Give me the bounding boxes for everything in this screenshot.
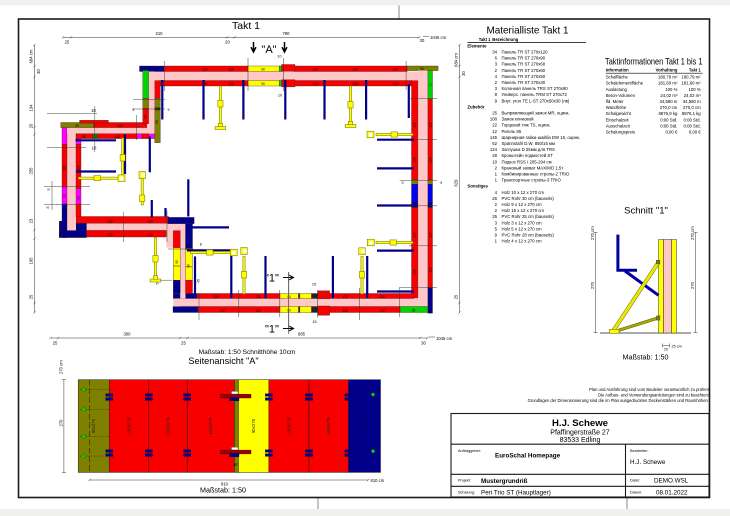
svg-text:120: 120: [429, 267, 433, 273]
svg-text:Information: Information: [606, 67, 629, 72]
svg-text:Taktinformationen Takt 1 bis: Taktinformationen Takt 1 bis 1: [605, 57, 703, 67]
svg-text:PVC Rohr 25 cm (bauseits): PVC Rohr 25 cm (bauseits): [502, 214, 555, 219]
svg-text:90: 90: [175, 260, 179, 264]
svg-text:629: 629: [454, 179, 459, 187]
svg-text:30: 30: [429, 83, 433, 87]
svg-text:Seitenansicht "A": Seitenansicht "A": [188, 356, 258, 366]
svg-text:Sonstiges: Sonstiges: [467, 184, 488, 189]
svg-text:Ausschalzeit: Ausschalzeit: [606, 123, 631, 128]
svg-text:5: 5: [47, 189, 51, 191]
svg-text:90: 90: [187, 264, 191, 268]
svg-text:Транспортные стропы-3 TRIO: Транспортные стропы-3 TRIO: [502, 178, 562, 183]
svg-text:0:00 Std.: 0:00 Std.: [683, 123, 700, 128]
svg-text:100 %: 100 %: [665, 87, 677, 92]
svg-text:120: 120: [228, 68, 234, 72]
svg-text:Крановый захват MAXIMO 1,5т: Крановый захват MAXIMO 1,5т: [502, 165, 564, 170]
svg-text:20: 20: [29, 123, 34, 128]
svg-text:34,580 m: 34,580 m: [683, 99, 701, 104]
svg-text:120x270: 120x270: [326, 417, 331, 434]
svg-text:Панель TR ST 270x90: Панель TR ST 270x90: [502, 56, 546, 61]
svg-text:90: 90: [412, 309, 416, 313]
svg-text:120: 120: [413, 232, 417, 238]
svg-text:Holz 10 x 12 x 270 cm: Holz 10 x 12 x 270 cm: [502, 190, 545, 195]
svg-text:25: 25: [29, 294, 34, 299]
svg-text:90: 90: [287, 295, 291, 299]
svg-text:300: 300: [124, 332, 132, 337]
svg-text:45: 45: [196, 279, 200, 283]
svg-text:Holz 3 x 12 x 270 cm: Holz 3 x 12 x 270 cm: [502, 220, 543, 225]
svg-text:4: 4: [133, 108, 135, 112]
svg-text:12: 12: [492, 129, 497, 134]
svg-text:Панель TR ST 270x60: Панель TR ST 270x60: [502, 68, 546, 73]
svg-text:Подкос RSS I 205-294 см: Подкос RSS I 205-294 см: [502, 159, 552, 164]
svg-text:8: 8: [46, 207, 50, 209]
svg-text:Holz 5 x 12 x 270 cm: Holz 5 x 12 x 270 cm: [502, 226, 543, 231]
svg-text:Maßstab: 1:50 Schnitthöhe 10: Maßstab: 1:50 Schnitthöhe 10cm: [199, 349, 296, 356]
svg-text:Maßstab: 1:50: Maßstab: 1:50: [200, 486, 246, 495]
svg-text:25: 25: [664, 348, 668, 352]
svg-text:134: 134: [29, 104, 34, 112]
svg-text:120: 120: [202, 68, 208, 72]
svg-text:100 %: 100 %: [689, 87, 701, 92]
svg-text:120: 120: [392, 68, 398, 72]
svg-text:PVC Rohr 30 cm (bauseits): PVC Rohr 30 cm (bauseits): [502, 196, 555, 201]
svg-text:Maßstab: 1:50: Maßstab: 1:50: [623, 353, 669, 362]
svg-text:180,79 m²: 180,79 m²: [658, 75, 678, 80]
svg-text:"1": "1": [265, 324, 279, 336]
svg-text:Торцевой тяж TS, оцинк.: Торцевой тяж TS, оцинк.: [502, 123, 551, 128]
svg-text:90x270: 90x270: [362, 418, 367, 433]
svg-text:45°: 45°: [233, 463, 239, 467]
svg-text:Auslastung: Auslastung: [606, 87, 628, 92]
svg-text:Колонная панель TRS ST 270x90: Колонная панель TRS ST 270x90: [502, 86, 569, 91]
svg-text:Takt 1: Takt 1: [479, 37, 491, 42]
svg-text:Materialliste Takt 1: Materialliste Takt 1: [487, 26, 569, 37]
svg-text:120x270: 120x270: [127, 417, 132, 434]
svg-text:120x270: 120x270: [166, 417, 171, 434]
svg-text:25: 25: [454, 294, 459, 299]
svg-text:0,00 €: 0,00 €: [665, 130, 678, 135]
svg-text:Schalgewicht: Schalgewicht: [606, 111, 632, 116]
svg-text:10: 10: [91, 108, 96, 113]
svg-text:34,580 m: 34,580 m: [659, 99, 677, 104]
svg-text:25: 25: [181, 340, 186, 345]
svg-text:120x270: 120x270: [208, 417, 213, 434]
svg-text:Внут. угол TE L-ST 270x50x30 (: Внут. угол TE L-ST 270x50x30 (лв): [502, 98, 570, 103]
svg-text:25 cm: 25 cm: [672, 344, 682, 348]
svg-text:684 cm: 684 cm: [454, 53, 459, 67]
svg-text:120: 120: [352, 68, 358, 72]
svg-text:Универс. панель TRM ST 270x72: Универс. панель TRM ST 270x72: [502, 92, 568, 97]
svg-text:Datei:: Datei:: [630, 478, 640, 482]
svg-text:810 cm: 810 cm: [371, 478, 385, 483]
svg-text:270: 270: [590, 281, 595, 289]
svg-text:15: 15: [312, 320, 316, 324]
svg-text:Панель TR ST 270x30: Панель TR ST 270x30: [502, 80, 546, 85]
svg-text:120: 120: [413, 157, 417, 163]
svg-text:270 cm: 270 cm: [690, 226, 695, 240]
svg-text:120: 120: [413, 122, 417, 128]
svg-text:Замок клиновой: Замок клиновой: [502, 117, 535, 122]
svg-text:20: 20: [225, 40, 230, 45]
svg-text:Schnitt "1": Schnitt "1": [624, 206, 668, 217]
svg-text:28: 28: [492, 153, 497, 158]
svg-text:9: 9: [440, 181, 442, 185]
svg-text:EuroSchal Homepage: EuroSchal Homepage: [495, 452, 561, 459]
svg-text:34: 34: [492, 50, 497, 55]
svg-text:120: 120: [107, 219, 113, 223]
svg-text:"A": "A": [261, 44, 276, 56]
svg-text:145: 145: [490, 135, 498, 140]
svg-text:780: 780: [283, 31, 291, 36]
svg-text:Комбинированные стропы-2 TRIO: Комбинированные стропы-2 TRIO: [502, 172, 571, 177]
svg-text:120: 120: [413, 269, 417, 275]
svg-text:270: 270: [690, 281, 695, 289]
svg-text:22: 22: [492, 123, 497, 128]
svg-text:Spannstahl D.W. 850/15 мм: Spannstahl D.W. 850/15 мм: [502, 141, 555, 146]
svg-text:25: 25: [492, 111, 497, 116]
svg-text:270: 270: [59, 419, 64, 427]
svg-text:120: 120: [255, 295, 261, 299]
svg-text:1045 cm: 1045 cm: [436, 336, 453, 341]
svg-text:120: 120: [429, 232, 433, 238]
svg-text:181,60 m²: 181,60 m²: [681, 81, 701, 86]
svg-text:0,00 €: 0,00 €: [689, 130, 702, 135]
svg-text:26: 26: [492, 196, 497, 201]
svg-text:Панель TR ST 270x50: Панель TR ST 270x50: [502, 74, 546, 79]
svg-text:Pfaffingerstraße 27: Pfaffingerstraße 27: [550, 430, 610, 437]
svg-text:DEMO.WSL: DEMO.WSL: [654, 478, 689, 485]
svg-text:5: 5: [168, 108, 170, 112]
svg-text:270,0 cm: 270,0 cm: [660, 105, 678, 110]
svg-text:181,60 m²: 181,60 m²: [658, 81, 678, 86]
svg-text:Peri Trio ST (Hauptlager): Peri Trio ST (Hauptlager): [481, 490, 551, 497]
svg-text:H.J. Schewe: H.J. Schewe: [630, 459, 666, 466]
svg-text:lfd. Meter: lfd. Meter: [606, 99, 624, 104]
svg-text:90: 90: [82, 135, 86, 139]
svg-text:30: 30: [421, 340, 426, 345]
svg-text:120: 120: [379, 295, 385, 299]
svg-text:120: 120: [219, 309, 225, 313]
svg-text:270,0 cm: 270,0 cm: [683, 105, 701, 110]
svg-text:120: 120: [255, 309, 261, 313]
svg-text:PVC Rohr 28 cm (bauseits): PVC Rohr 28 cm (bauseits): [502, 233, 555, 238]
svg-text:Auftraggeber:: Auftraggeber:: [458, 449, 481, 453]
svg-text:90: 90: [287, 309, 291, 313]
svg-text:24,02 m³: 24,02 m³: [660, 93, 678, 98]
svg-text:120: 120: [312, 68, 318, 72]
svg-text:Панель TR ST 270x60: Панель TR ST 270x60: [502, 62, 546, 67]
svg-text:Wandhöhe: Wandhöhe: [606, 105, 627, 110]
svg-text:685: 685: [298, 332, 306, 337]
svg-text:Holz 15 x 12 x 270 cm: Holz 15 x 12 x 270 cm: [502, 208, 545, 213]
svg-text:100: 100: [490, 117, 498, 122]
svg-text:Beton-Volumen: Beton-Volumen: [606, 93, 636, 98]
svg-text:Holz 9 x 12 x 270 cm: Holz 9 x 12 x 270 cm: [502, 202, 543, 207]
svg-text:Mustergrundriß: Mustergrundriß: [481, 478, 528, 485]
svg-text:120: 120: [429, 122, 433, 128]
svg-text:10: 10: [92, 146, 97, 151]
svg-text:15: 15: [312, 283, 316, 287]
svg-text:120: 120: [147, 219, 153, 223]
svg-text:1045 cm: 1045 cm: [430, 35, 447, 40]
svg-text:90x270: 90x270: [251, 418, 256, 433]
svg-text:8876,1 kg: 8876,1 kg: [682, 111, 701, 116]
svg-text:10: 10: [278, 94, 282, 98]
svg-text:Grundlagen der Dimensionierung: Grundlagen der Dimensionierung sind die …: [528, 398, 709, 403]
svg-text:Die Aufbau- und Verwendungsanl: Die Aufbau- und Verwendungsanleitungen s…: [598, 393, 709, 398]
svg-text:Заглушка D 25мм для TRS: Заглушка D 25мм для TRS: [502, 147, 556, 152]
svg-text:90: 90: [155, 120, 159, 124]
svg-text:Панель TR ST 270x120: Панель TR ST 270x120: [502, 50, 549, 55]
svg-text:120: 120: [213, 295, 219, 299]
svg-text:90: 90: [261, 68, 265, 72]
svg-text:Bezeichnung: Bezeichnung: [492, 37, 518, 42]
svg-text:Schalungspreis: Schalungspreis: [606, 130, 635, 135]
svg-text:Elemente: Elemente: [467, 43, 487, 48]
svg-text:Schalelementfläche: Schalelementfläche: [606, 81, 644, 86]
svg-text:30: 30: [36, 69, 41, 74]
svg-text:Takt 1: Takt 1: [232, 20, 260, 32]
svg-text:120: 120: [228, 82, 234, 86]
svg-text:120: 120: [352, 82, 358, 86]
svg-text:120: 120: [429, 157, 433, 163]
svg-text:120: 120: [114, 135, 120, 139]
svg-text:Zubehör: Zubehör: [467, 104, 485, 109]
svg-text:5: 5: [156, 283, 160, 285]
svg-text:24,02 m³: 24,02 m³: [684, 93, 702, 98]
svg-text:Schalfläche: Schalfläche: [606, 75, 629, 80]
svg-text:08.01.2022: 08.01.2022: [656, 490, 688, 497]
svg-text:120x270: 120x270: [286, 417, 291, 434]
svg-text:25: 25: [492, 214, 497, 219]
svg-text:120: 120: [117, 124, 123, 128]
svg-text:0:00 Std.: 0:00 Std.: [660, 117, 677, 122]
svg-text:0:00 Std.: 0:00 Std.: [660, 123, 677, 128]
svg-text:0:00 Std.: 0:00 Std.: [683, 117, 700, 122]
svg-text:"1": "1": [265, 273, 279, 285]
svg-text:120: 120: [342, 295, 348, 299]
svg-text:25: 25: [65, 40, 70, 45]
svg-text:90: 90: [63, 194, 67, 198]
svg-text:Projekt:: Projekt:: [458, 478, 471, 482]
svg-text:Schalung:: Schalung:: [458, 490, 475, 494]
svg-text:Holz 4 x 12 x 270 cm: Holz 4 x 12 x 270 cm: [502, 239, 543, 244]
svg-text:90: 90: [420, 67, 424, 71]
svg-text:83533 Edling: 83533 Edling: [560, 437, 601, 444]
svg-text:210: 210: [156, 31, 164, 36]
svg-text:120: 120: [392, 82, 398, 86]
svg-text:180,79 m²: 180,79 m²: [681, 75, 701, 80]
svg-text:30: 30: [420, 38, 425, 43]
svg-text:120: 120: [312, 82, 318, 86]
svg-text:255: 255: [29, 167, 34, 175]
svg-text:62: 62: [492, 141, 497, 146]
svg-text:270 cm: 270 cm: [590, 226, 595, 240]
svg-text:90x270: 90x270: [91, 418, 96, 433]
svg-text:Ригель 85: Ригель 85: [502, 129, 522, 134]
svg-text:25: 25: [53, 340, 58, 345]
svg-text:9: 9: [402, 181, 404, 185]
svg-text:90: 90: [75, 124, 79, 128]
svg-text:10: 10: [492, 159, 497, 164]
svg-text:8: 8: [200, 242, 202, 246]
svg-text:90: 90: [144, 115, 148, 119]
svg-text:8876,9 kg: 8876,9 kg: [659, 111, 678, 116]
svg-text:Vorhaltung: Vorhaltung: [656, 67, 678, 72]
svg-text:Кронштейн подмостей ST: Кронштейн подмостей ST: [502, 153, 554, 158]
svg-text:90: 90: [261, 82, 265, 86]
svg-text:124: 124: [490, 147, 498, 152]
svg-text:90: 90: [77, 196, 81, 200]
svg-text:684 cm: 684 cm: [29, 49, 34, 63]
svg-text:120: 120: [63, 165, 67, 171]
svg-text:195: 195: [29, 257, 34, 265]
svg-text:Выпрямляющий замок MR, оцинк.: Выпрямляющий замок MR, оцинк.: [502, 111, 570, 116]
svg-text:120: 120: [77, 165, 81, 171]
svg-text:120: 120: [147, 233, 153, 237]
svg-text:Takt 1: Takt 1: [689, 67, 701, 72]
svg-text:120: 120: [107, 233, 113, 237]
svg-text:Шарнирная гайка-шайба DW 15, о: Шарнирная гайка-шайба DW 15, оцинк.: [502, 135, 581, 140]
svg-text:120: 120: [342, 309, 348, 313]
svg-text:30: 30: [461, 71, 466, 76]
svg-text:Einschalzeit: Einschalzeit: [606, 117, 630, 122]
svg-text:H.J. Schewe: H.J. Schewe: [552, 418, 608, 429]
svg-text:270 cm: 270 cm: [59, 360, 64, 374]
svg-text:Bearbeiter:: Bearbeiter:: [630, 449, 649, 453]
svg-text:120: 120: [379, 309, 385, 313]
svg-text:23: 23: [29, 218, 34, 223]
svg-text:Datum:: Datum:: [630, 490, 642, 494]
svg-text:Plan und Ausführung sind vom B: Plan und Ausführung sind vom Bauleiter v…: [589, 387, 709, 392]
svg-text:10: 10: [277, 55, 281, 59]
